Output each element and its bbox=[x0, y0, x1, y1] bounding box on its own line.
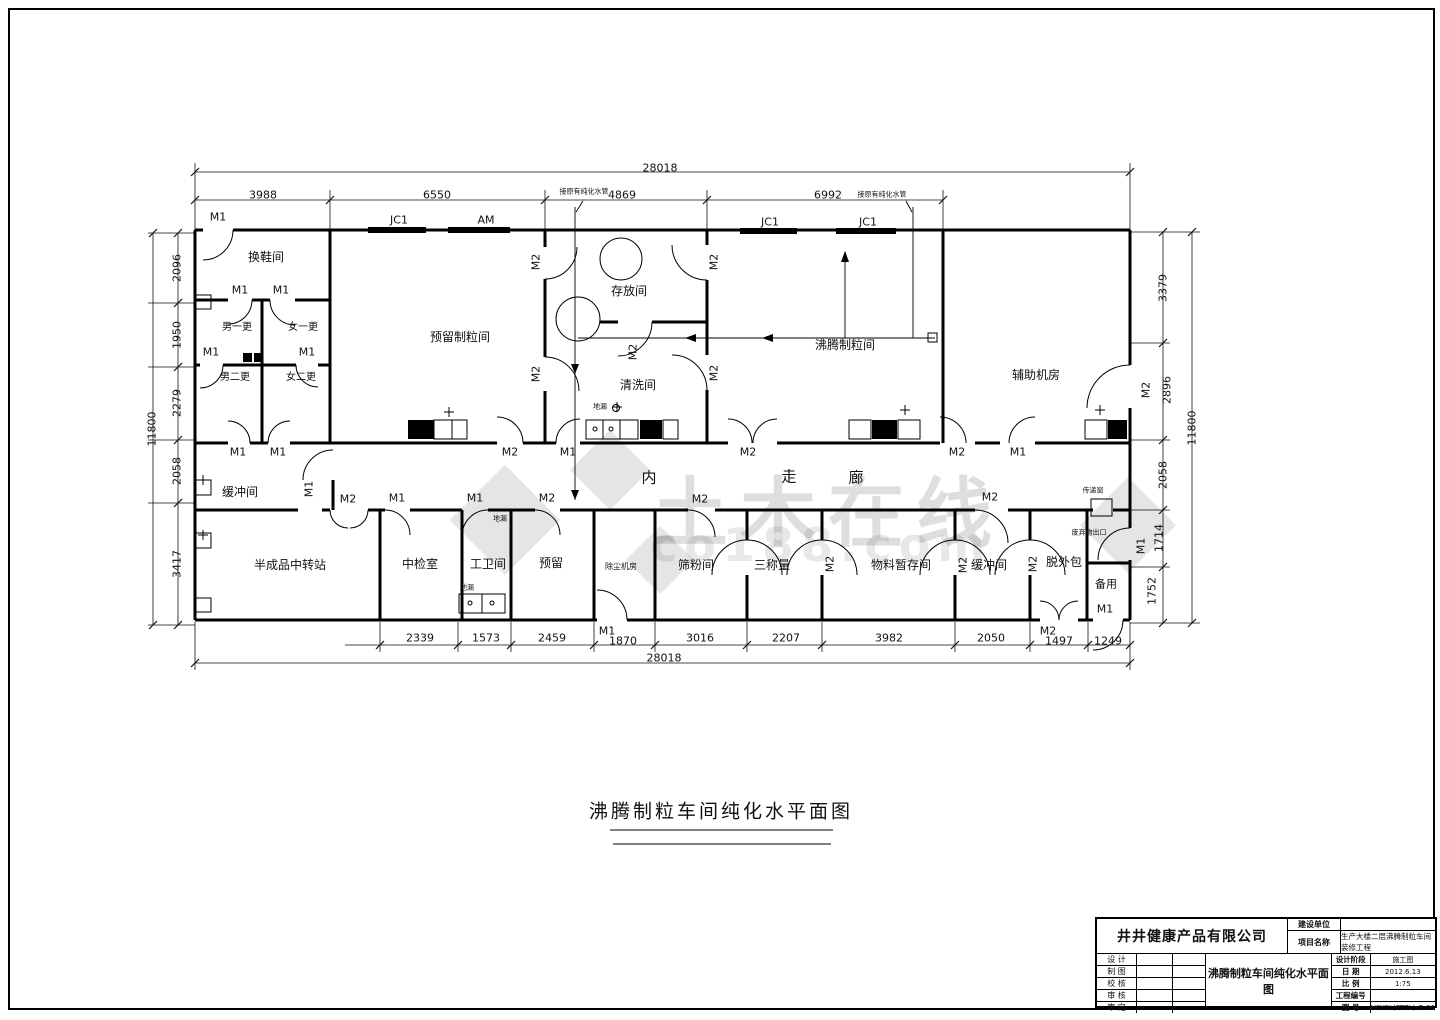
pipe-annotation: 接原有纯化水管 bbox=[560, 189, 609, 196]
window-label: JC1 bbox=[390, 215, 408, 226]
dim-label: 6550 bbox=[423, 190, 451, 201]
floor-plan-linework bbox=[0, 0, 1440, 1020]
floor-drain-label: 地漏 bbox=[460, 585, 474, 592]
door-label: M1 bbox=[1010, 447, 1027, 458]
signature-grid: 设 计 制 图 校 核 审 核 审 定 bbox=[1097, 954, 1206, 1007]
equipment-solids bbox=[243, 353, 1127, 439]
room-label: 三称量 bbox=[754, 559, 790, 571]
door-label: M1 bbox=[210, 212, 227, 223]
field-value: HSYSL(FTZL)-G-06 bbox=[1371, 1002, 1435, 1013]
room-label: 中检室 bbox=[402, 558, 438, 570]
dim-label: 2459 bbox=[538, 633, 566, 644]
room-label: 备用 bbox=[1095, 579, 1117, 590]
dim-label: 2050 bbox=[977, 633, 1005, 644]
room-label: 筛粉间 bbox=[678, 559, 714, 571]
dim-label: 1752 bbox=[1147, 577, 1158, 605]
room-label: 存放间 bbox=[611, 285, 647, 297]
dim-label: 6992 bbox=[814, 190, 842, 201]
title-block: 井井健康产品有限公司 建设单位 项目名称 生产大楼二层沸腾制粒车间装修工程 设 … bbox=[1095, 917, 1437, 1008]
window-label: AM bbox=[477, 215, 494, 226]
field-label: 日 期 bbox=[1332, 966, 1371, 977]
door-label: M1 bbox=[467, 493, 484, 504]
room-label: 物料暂存间 bbox=[871, 559, 931, 571]
door-label: M2 bbox=[628, 344, 639, 361]
door-label: M2 bbox=[982, 492, 999, 503]
tank-circle bbox=[556, 297, 600, 341]
title-underline bbox=[610, 830, 833, 844]
room-label: 除尘机房 bbox=[605, 563, 637, 571]
dim-total-left: 11800 bbox=[147, 412, 158, 447]
field-value: 2012.6.13 bbox=[1371, 966, 1435, 977]
field-value: 1:75 bbox=[1371, 978, 1435, 989]
dim-label: 3982 bbox=[875, 633, 903, 644]
floor-drain-label: 地漏 bbox=[593, 404, 607, 411]
dim-label: 3988 bbox=[249, 190, 277, 201]
room-label: 缓冲间 bbox=[971, 559, 1007, 571]
room-label: 缓冲间 bbox=[222, 486, 258, 498]
door-label: M1 bbox=[232, 285, 249, 296]
door-label: M2 bbox=[502, 447, 519, 458]
sign-row-label: 校 核 bbox=[1097, 978, 1137, 990]
door-label: M1 bbox=[270, 447, 287, 458]
door-label: M2 bbox=[958, 557, 969, 574]
dim-label: 1950 bbox=[172, 321, 183, 349]
room-label: 脱外包 bbox=[1046, 556, 1082, 568]
corridor-label: 内 bbox=[641, 471, 656, 486]
door-label: M2 bbox=[539, 493, 556, 504]
door-label: M1 bbox=[1097, 604, 1114, 615]
dim-label: 1714 bbox=[1154, 524, 1165, 552]
dim-label: 4869 bbox=[608, 190, 636, 201]
door-label: M2 bbox=[709, 365, 720, 382]
door-label: M1 bbox=[304, 481, 315, 498]
door-label: M2 bbox=[825, 556, 836, 573]
door-label: M1 bbox=[560, 447, 577, 458]
room-label: 沸腾制粒间 bbox=[815, 339, 875, 351]
door-label: M2 bbox=[709, 254, 720, 271]
door-label: M2 bbox=[531, 254, 542, 271]
dim-label: 1497 bbox=[1045, 636, 1073, 647]
room-label: 工卫间 bbox=[470, 558, 506, 570]
pipe-annotation: 接原有纯化水管 bbox=[858, 192, 907, 199]
room-label: 男二更 bbox=[220, 373, 250, 383]
door-label: M1 bbox=[1136, 538, 1147, 555]
field-label: 图 号 bbox=[1332, 1002, 1371, 1013]
room-label: 半成品中转站 bbox=[254, 559, 326, 571]
dimension-lines bbox=[148, 163, 1200, 670]
door-label: M2 bbox=[1141, 382, 1152, 399]
project-value: 生产大楼二层沸腾制粒车间装修工程 bbox=[1341, 931, 1435, 953]
dim-total-top: 28018 bbox=[643, 163, 678, 174]
door-label: M2 bbox=[1028, 556, 1039, 573]
door-label: M2 bbox=[692, 494, 709, 505]
door-label: M2 bbox=[340, 494, 357, 505]
door-label: M2 bbox=[531, 366, 542, 383]
drawing-sheet: 土木在线 co188.com 280183988655048696992接原有纯… bbox=[0, 0, 1440, 1020]
waste-exit-label: 废弃物出口 bbox=[1072, 530, 1107, 537]
corridor-label: 走 bbox=[781, 470, 796, 485]
field-label: 比 例 bbox=[1332, 978, 1371, 989]
room-label: 女二更 bbox=[286, 373, 316, 383]
project-label: 项目名称 bbox=[1288, 931, 1341, 953]
company-name: 井井健康产品有限公司 bbox=[1097, 919, 1288, 953]
dim-label: 3379 bbox=[1158, 274, 1169, 302]
sign-row-label: 审 定 bbox=[1097, 1002, 1137, 1013]
dim-label: 2339 bbox=[406, 633, 434, 644]
dim-total-bottom: 28018 bbox=[647, 653, 682, 664]
drawing-title: 沸腾制粒车间纯化水平面图 bbox=[589, 803, 853, 822]
room-label: 预留制粒间 bbox=[430, 331, 490, 343]
dim-label: 1870 bbox=[609, 636, 637, 647]
dim-label: 1249 bbox=[1094, 636, 1122, 647]
owner-value bbox=[1341, 919, 1435, 930]
field-label: 设计阶段 bbox=[1332, 954, 1371, 965]
room-label: 预留 bbox=[539, 557, 563, 569]
dim-label: 1573 bbox=[472, 633, 500, 644]
room-label: 辅助机房 bbox=[1012, 369, 1060, 381]
dim-label: 2058 bbox=[1158, 461, 1169, 489]
room-label: 女一更 bbox=[288, 323, 318, 333]
sign-row-label: 设 计 bbox=[1097, 954, 1137, 966]
room-label: 男一更 bbox=[222, 323, 252, 333]
room-label: 清洗间 bbox=[620, 379, 656, 391]
window-label: JC1 bbox=[859, 217, 877, 228]
field-label: 工程编号 bbox=[1332, 990, 1371, 1001]
field-value bbox=[1371, 990, 1435, 1001]
room-label: 换鞋间 bbox=[248, 251, 284, 263]
dim-total-right: 11800 bbox=[1187, 411, 1198, 446]
owner-label: 建设单位 bbox=[1288, 919, 1341, 930]
dim-label: 2207 bbox=[772, 633, 800, 644]
dim-label: 2279 bbox=[172, 389, 183, 417]
sign-row-label: 制 图 bbox=[1097, 966, 1137, 978]
dim-label: 3016 bbox=[686, 633, 714, 644]
title-block-drawing-title: 沸腾制粒车间纯化水平面图 bbox=[1206, 954, 1331, 1007]
window-label: JC1 bbox=[761, 217, 779, 228]
dim-label: 2058 bbox=[172, 457, 183, 485]
floor-drain-label: 地漏 bbox=[493, 516, 507, 523]
door-label: M1 bbox=[299, 347, 316, 358]
dim-label: 2896 bbox=[1162, 376, 1173, 404]
dim-label: 2096 bbox=[172, 254, 183, 282]
dim-label: 3417 bbox=[172, 550, 183, 578]
door-label: M1 bbox=[203, 347, 220, 358]
door-label: M1 bbox=[230, 447, 247, 458]
door-label: M1 bbox=[389, 493, 406, 504]
field-value: 施工图 bbox=[1371, 954, 1435, 965]
pass-window-label: 传递窗 bbox=[1083, 488, 1104, 495]
door-label: M1 bbox=[273, 285, 290, 296]
corridor-label: 廊 bbox=[848, 471, 863, 486]
door-label: M2 bbox=[949, 447, 966, 458]
sign-row-label: 审 核 bbox=[1097, 990, 1137, 1002]
field-rows: 设计阶段 施工图 日 期 2012.6.13 比 例 1:75 工程编号 图 号 bbox=[1332, 954, 1435, 1007]
tank-circle bbox=[600, 238, 642, 280]
door-label: M2 bbox=[740, 447, 757, 458]
